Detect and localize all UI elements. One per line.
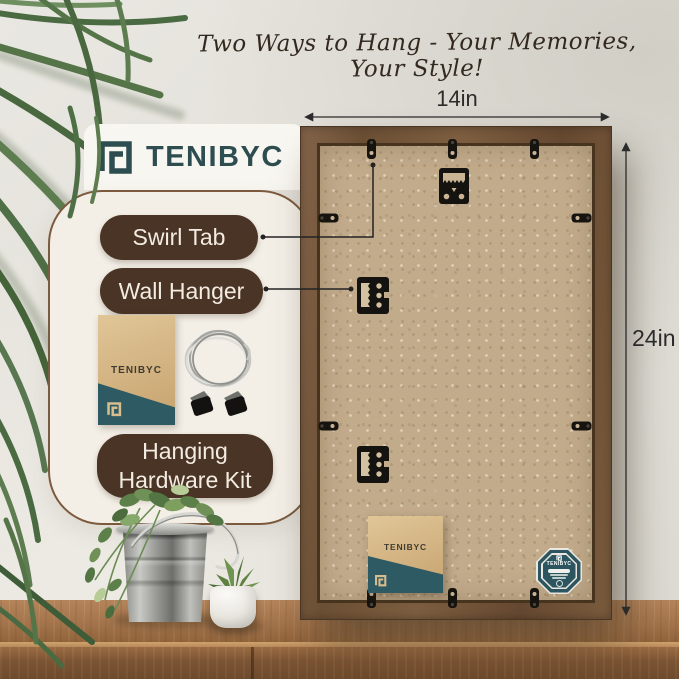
swirl-tab-icon <box>530 139 539 159</box>
badge-brand: TENIBYC <box>547 562 572 567</box>
succulent-pot <box>210 586 256 628</box>
sawtooth-hanger-icon <box>439 168 469 204</box>
swirl-tab-icon <box>572 422 592 431</box>
brand-logo-icon <box>374 574 387 587</box>
width-dimension-label: 14in <box>415 86 499 112</box>
swirl-tab-icon <box>319 422 339 431</box>
wall-hanger-bracket-icon <box>357 446 389 483</box>
product-infographic: Two Ways to Hang - Your Memories, Your S… <box>0 0 679 679</box>
picture-frame-back: TENIBYC TENIBYC <box>300 126 612 620</box>
brand-name: TENIBYC <box>146 141 284 174</box>
badge-seal-icon: TENIBYC <box>536 548 582 594</box>
swirl-tab-icon <box>448 588 457 608</box>
wire-coil-icon <box>180 324 256 396</box>
wall-hanger-bracket-icon <box>357 277 389 314</box>
backer-card-brand: TENIBYC <box>368 542 443 552</box>
swirl-tab-icon <box>530 588 539 608</box>
hanging-clip-icon <box>218 390 254 420</box>
swirl-tab-icon <box>572 214 592 223</box>
swirl-tab-icon <box>367 139 376 159</box>
kraft-back-panel <box>317 143 595 603</box>
swirl-tab-icon <box>448 139 457 159</box>
height-dimension-label: 24in <box>632 325 675 352</box>
hanging-clip-icon <box>184 390 220 420</box>
palm-frond-foreground <box>0 0 140 679</box>
backer-card: TENIBYC <box>368 516 443 593</box>
brand-logo-icon <box>556 555 562 561</box>
swirl-tab-icon <box>319 214 339 223</box>
